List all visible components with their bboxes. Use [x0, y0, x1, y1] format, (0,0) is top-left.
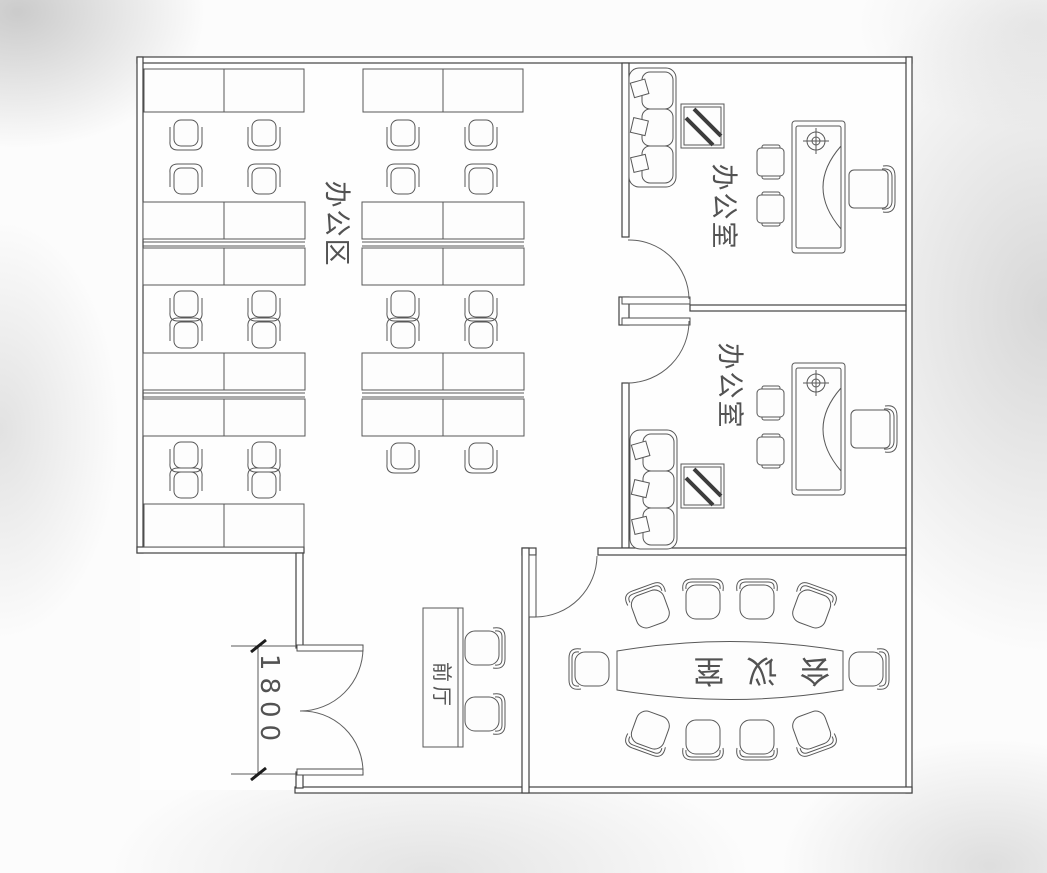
- guest-chair-icon: [757, 145, 784, 179]
- coffee-table-icon: [681, 104, 724, 148]
- entrance-door-leaf-upper: [297, 645, 363, 651]
- wall-offices-left-upper: [622, 63, 629, 237]
- front-hall-label: 前厅: [430, 662, 454, 710]
- desk-bank: [363, 69, 523, 112]
- sofa-icon: [630, 430, 677, 549]
- executive-desk-icon: [792, 363, 845, 495]
- entrance-door-leaf-lower: [297, 769, 363, 775]
- wall-office-area-bottom: [137, 547, 304, 553]
- wall-top: [137, 57, 912, 63]
- wall-right: [906, 57, 912, 793]
- guest-chair-icon: [757, 386, 784, 420]
- desk-bank: [144, 69, 304, 112]
- office-top-label: 办公室: [708, 164, 739, 251]
- wall-front-hall-right: [522, 548, 529, 793]
- office-mid-door-leaf: [622, 318, 690, 325]
- guest-chair-icon: [757, 192, 784, 226]
- wall-bottom: [295, 787, 912, 793]
- office-area-label: 办公区: [321, 181, 352, 268]
- coffee-table-icon: [681, 464, 724, 508]
- floor-plan-page: 1800 办公区: [0, 0, 1047, 873]
- wall-office-divider: [690, 305, 906, 311]
- office-top-door-leaf: [622, 297, 690, 304]
- wall-left: [137, 57, 143, 553]
- meeting-room-label: 会议室: [672, 652, 831, 688]
- wall-entrance-upper: [296, 553, 303, 648]
- executive-desk-icon: [792, 121, 845, 253]
- guest-chair-icon: [757, 434, 784, 468]
- dimension-value: 1800: [254, 654, 284, 748]
- office-mid-label: 办公室: [714, 343, 745, 430]
- desk-bank: [144, 504, 304, 547]
- floor-plan-drawing: 1800 办公区: [0, 0, 1047, 873]
- sofa-icon: [629, 68, 676, 187]
- wall-offices-left-lower: [622, 383, 629, 548]
- meeting-door-leaf: [529, 555, 536, 617]
